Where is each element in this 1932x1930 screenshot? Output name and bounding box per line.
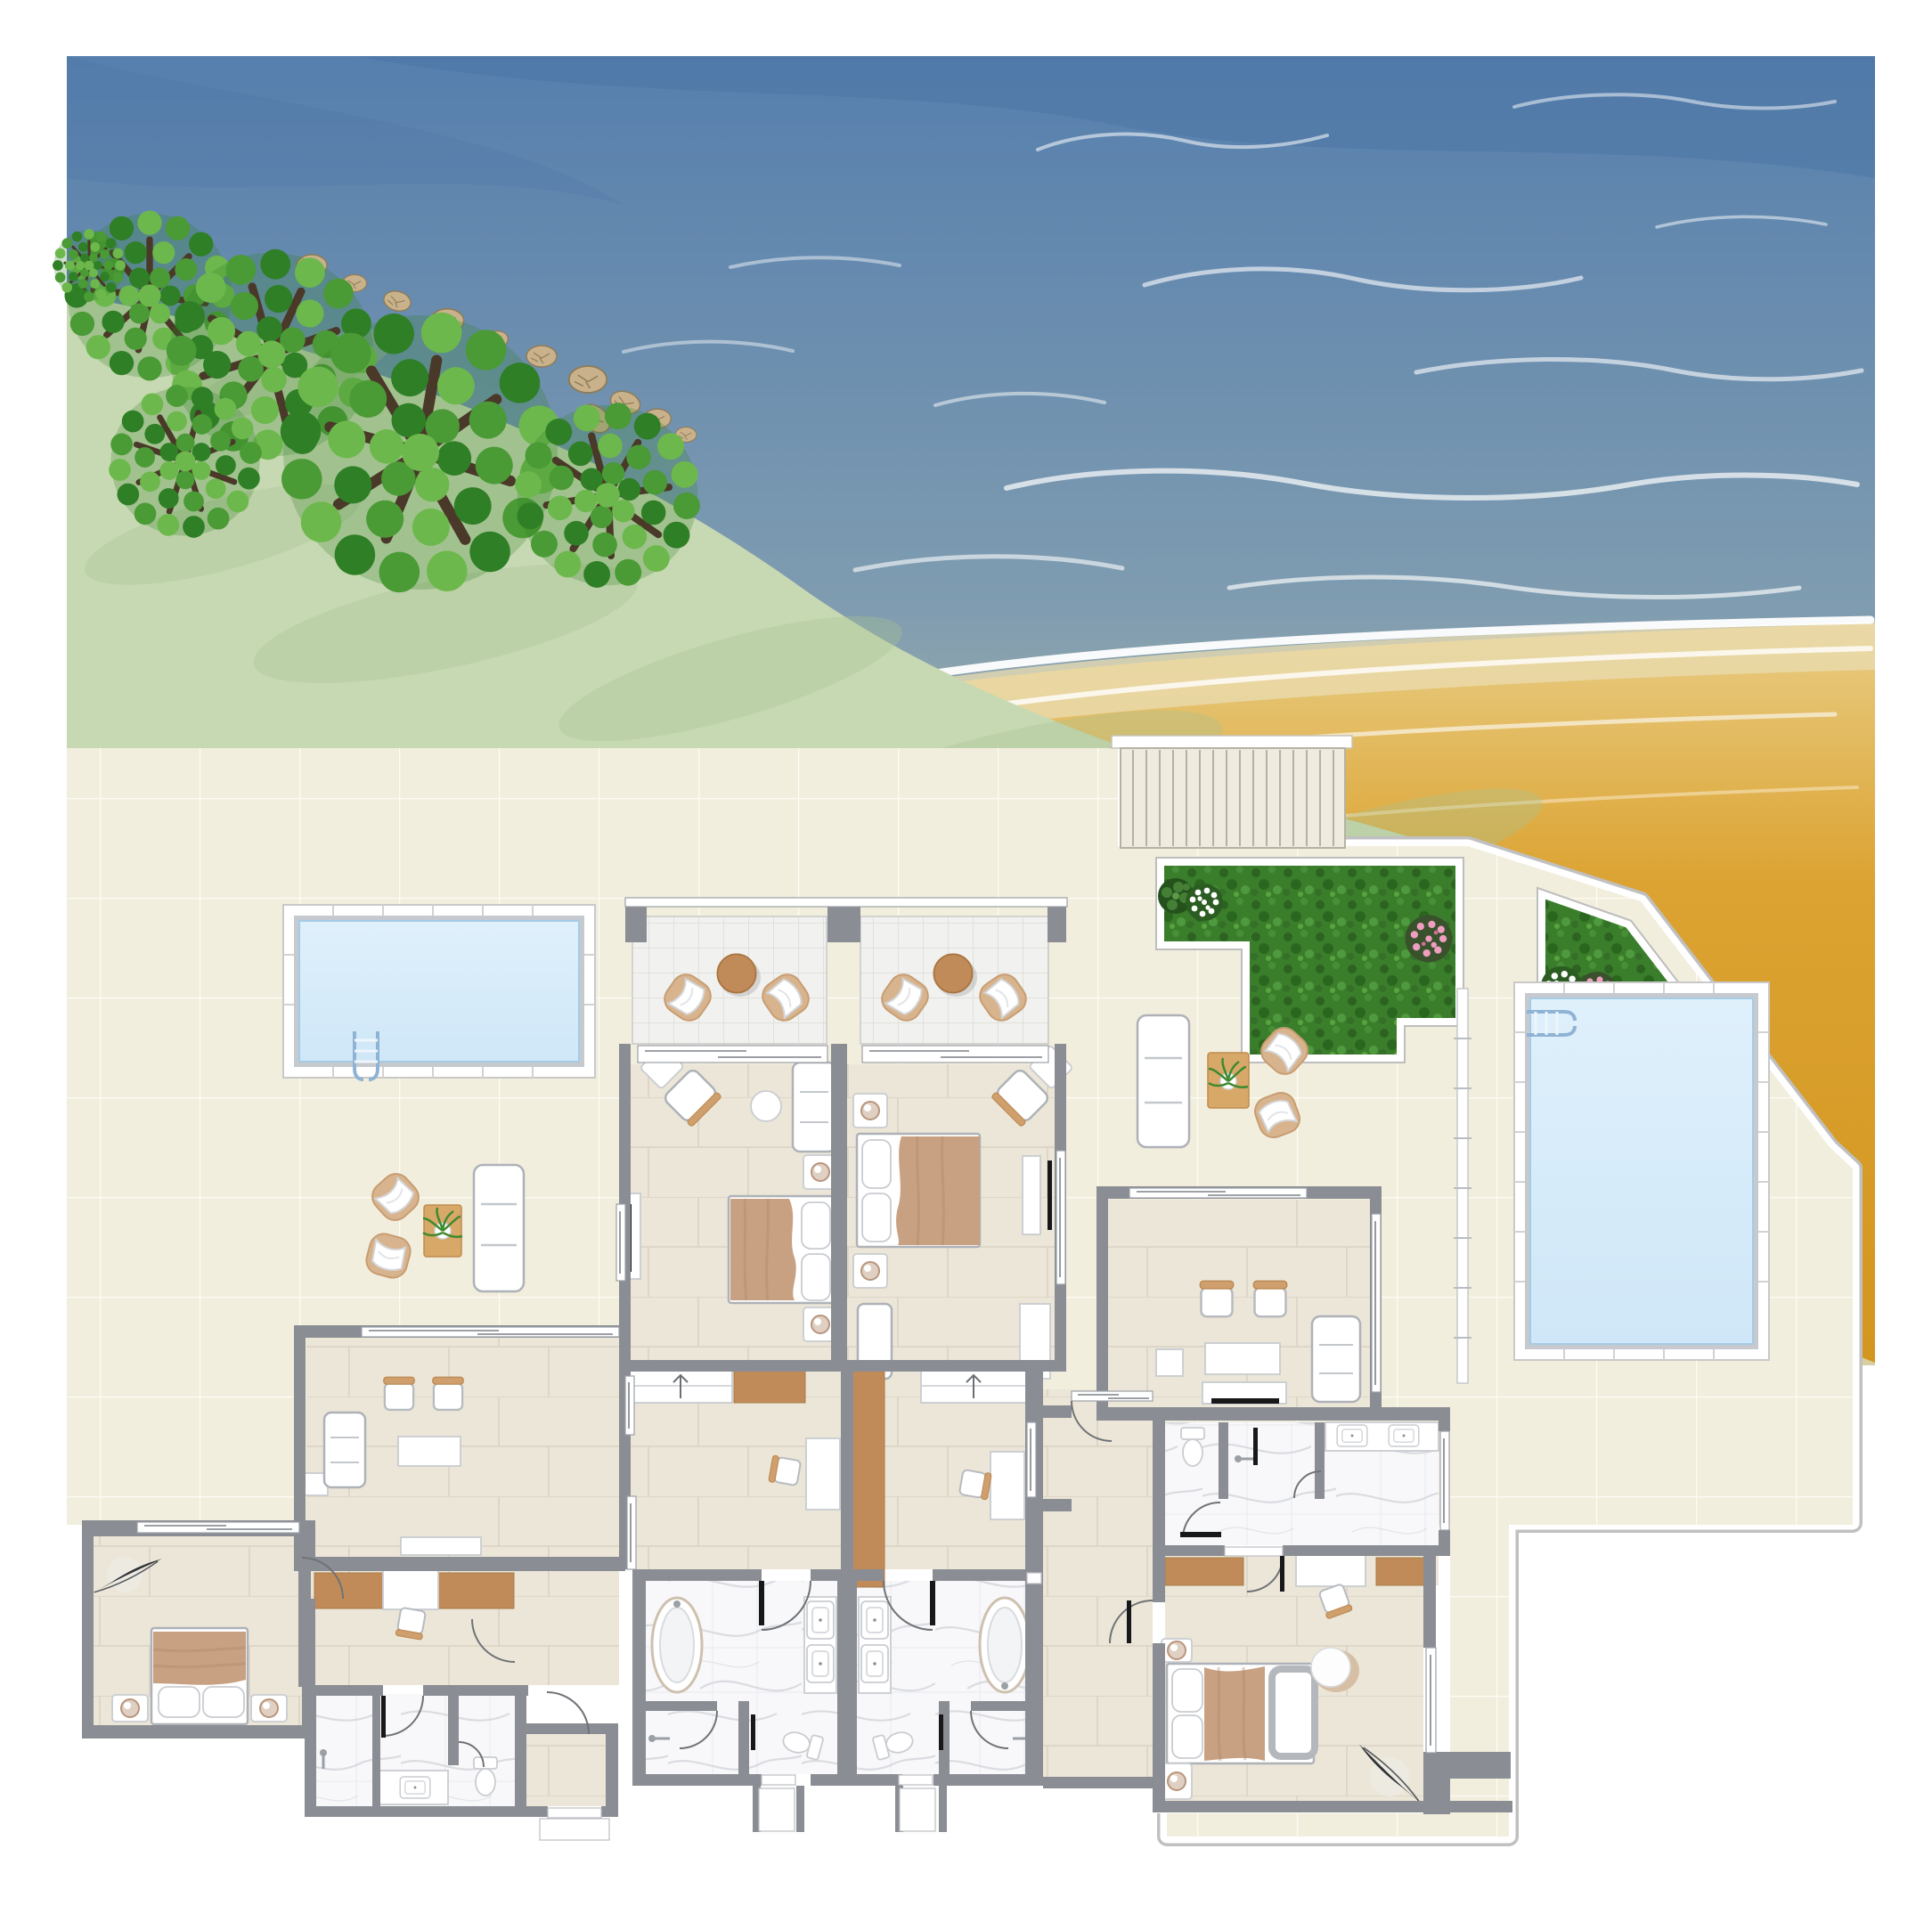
side-table <box>1156 1349 1183 1376</box>
floor-plan-canvas <box>0 0 1932 1930</box>
sofa <box>793 1063 836 1152</box>
window <box>625 1376 634 1435</box>
window <box>1372 1214 1381 1392</box>
window <box>1426 1648 1436 1753</box>
wardrobe <box>1376 1558 1425 1585</box>
nightstand <box>251 1695 287 1722</box>
wardrobe <box>1165 1558 1243 1585</box>
nightstand <box>853 1094 887 1128</box>
nightstand <box>1162 1639 1192 1662</box>
nightstand <box>112 1695 148 1722</box>
pillow <box>1172 1669 1202 1712</box>
sliding-door <box>1072 1391 1153 1401</box>
pool-right <box>1514 982 1769 1360</box>
window <box>627 1496 636 1569</box>
bench <box>1023 1156 1040 1234</box>
balcony-rail <box>625 898 1067 907</box>
wardrobe <box>852 1370 884 1587</box>
tv-sideboard <box>401 1537 481 1555</box>
pillow <box>802 1202 830 1249</box>
bed <box>729 1196 837 1303</box>
pool-left <box>283 905 595 1079</box>
desk <box>806 1438 840 1510</box>
hall-floor <box>1043 1389 1153 1788</box>
sofa <box>324 1413 365 1487</box>
side-table <box>751 1091 781 1121</box>
pillow <box>159 1687 200 1717</box>
entry-step <box>900 1788 935 1831</box>
window <box>1027 1422 1036 1497</box>
window <box>362 1327 619 1337</box>
entry-step <box>540 1819 609 1840</box>
window <box>1056 1151 1065 1284</box>
coffee-table <box>1205 1343 1280 1374</box>
bed <box>151 1628 248 1724</box>
hall-door-threshold <box>1027 1573 1041 1584</box>
bed <box>857 1134 980 1247</box>
entry-step <box>759 1788 795 1831</box>
bench <box>1272 1669 1315 1756</box>
table <box>398 1437 461 1466</box>
nightstand <box>1162 1763 1192 1799</box>
pillow <box>862 1193 891 1242</box>
sliding-door <box>862 1046 1048 1063</box>
tv-icon <box>1211 1398 1279 1404</box>
desk <box>990 1452 1024 1519</box>
wardrobe <box>438 1573 514 1608</box>
floor-plan-svg <box>0 0 1932 1930</box>
desk <box>383 1570 438 1609</box>
nightstand <box>853 1254 887 1288</box>
staircase-to-beach <box>1112 736 1352 848</box>
pillow <box>1172 1715 1202 1758</box>
vestibule-D-floor <box>526 1734 606 1806</box>
pillow <box>802 1254 830 1300</box>
wardrobe <box>314 1573 383 1608</box>
window <box>616 1204 625 1281</box>
pillow <box>203 1687 244 1717</box>
sliding-door <box>638 1046 827 1063</box>
wardrobe <box>734 1370 805 1403</box>
window <box>1129 1188 1307 1198</box>
desk <box>1296 1552 1365 1586</box>
sofa <box>1312 1316 1360 1402</box>
window <box>137 1522 299 1533</box>
window <box>1440 1431 1449 1530</box>
pillow <box>862 1140 891 1188</box>
tv-icon <box>1048 1160 1052 1230</box>
